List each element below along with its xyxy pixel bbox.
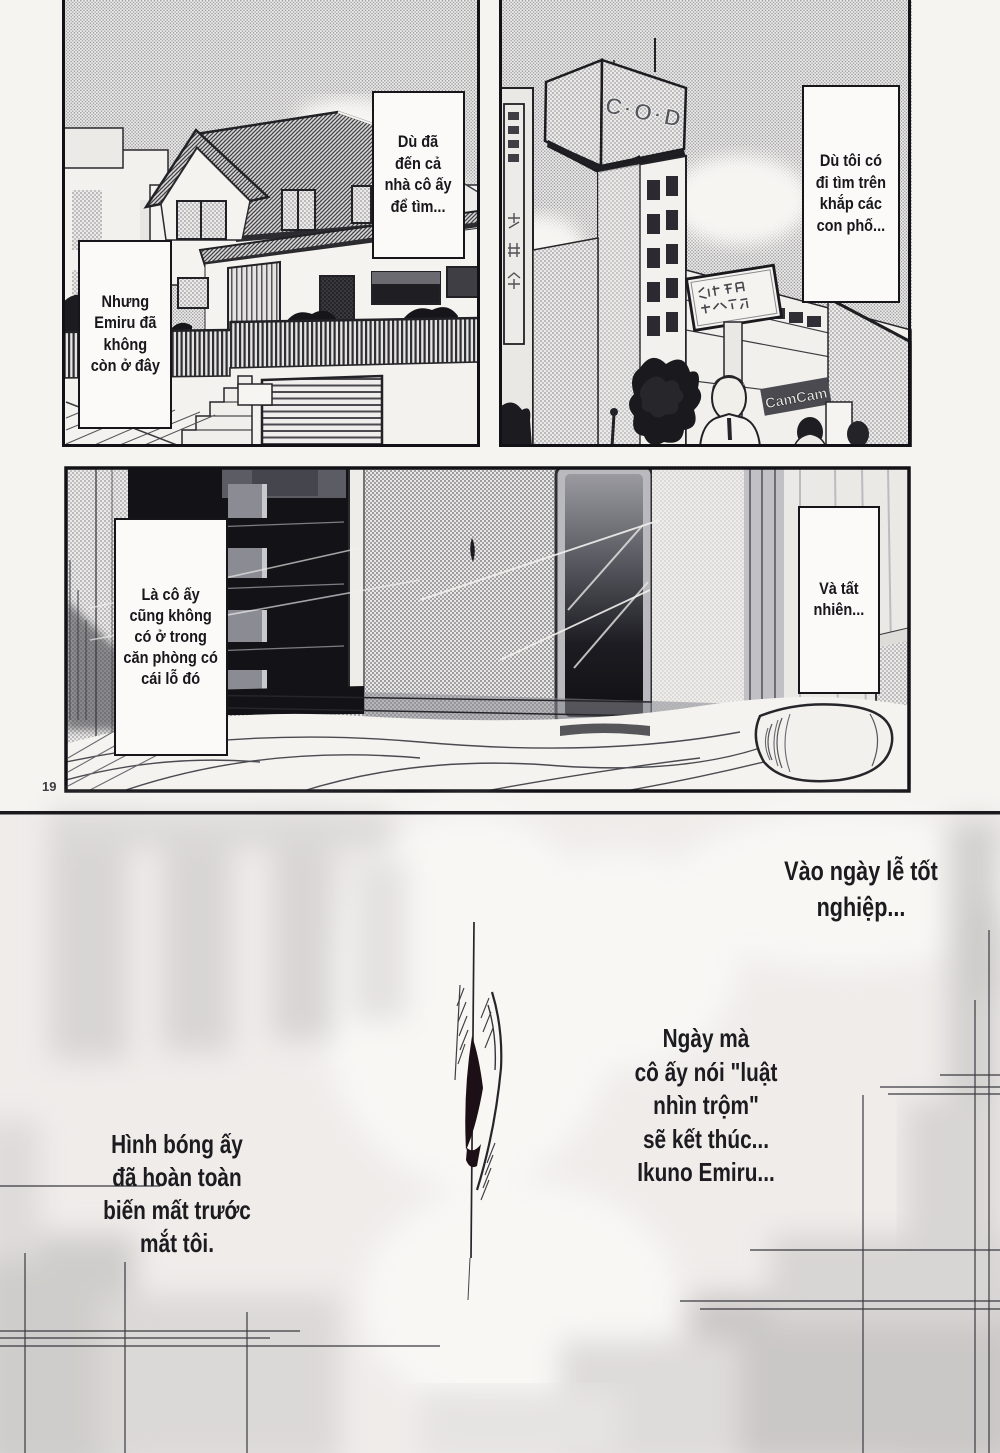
svg-text:19: 19 xyxy=(42,779,56,794)
